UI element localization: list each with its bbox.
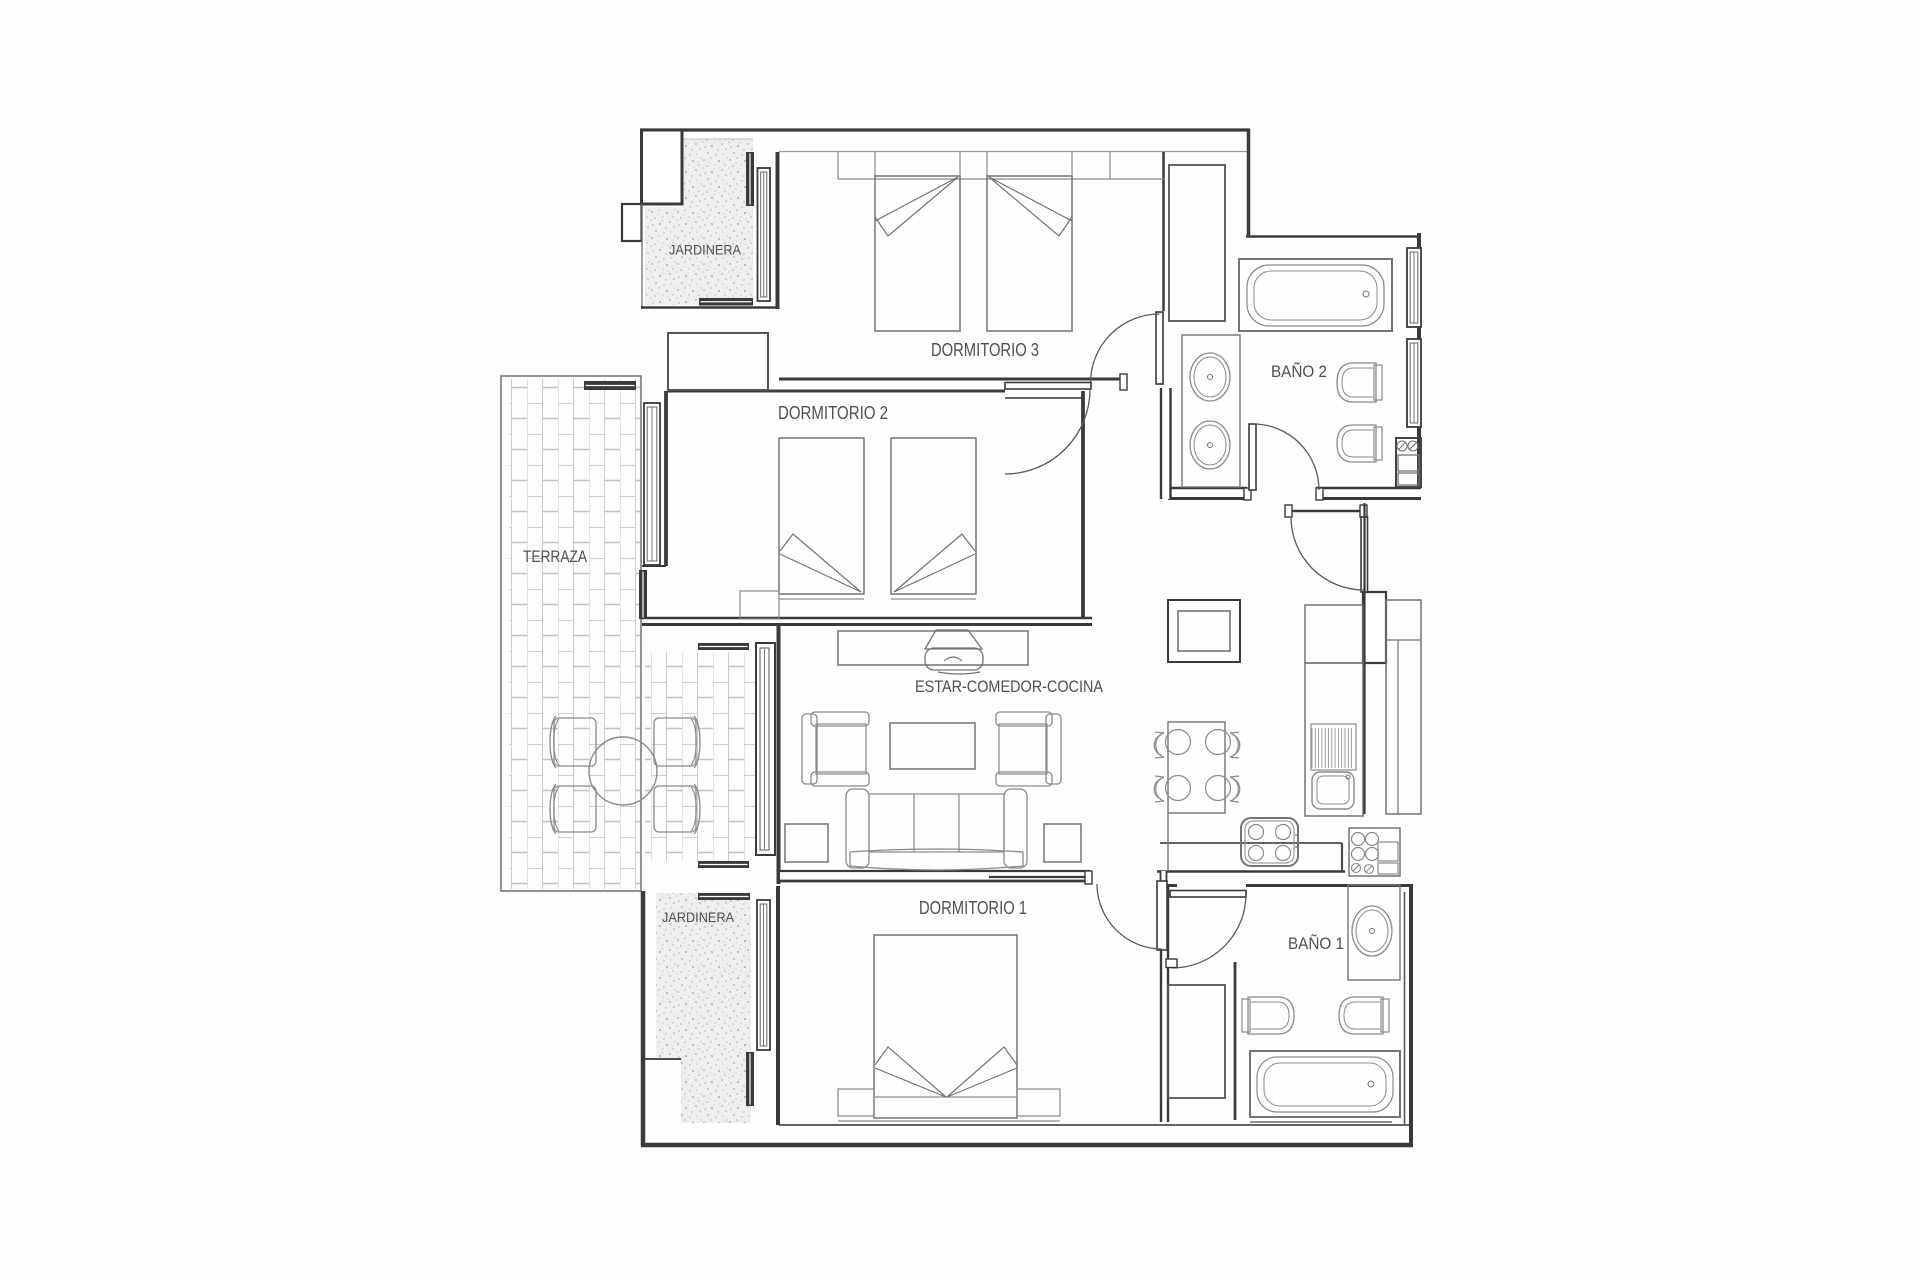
svg-text:BAÑO 2: BAÑO 2 — [1271, 362, 1327, 381]
svg-text:JARDINERA: JARDINERA — [662, 909, 735, 925]
svg-text:DORMITORIO 2: DORMITORIO 2 — [778, 403, 888, 423]
svg-text:ESTAR-COMEDOR-COCINA: ESTAR-COMEDOR-COCINA — [915, 677, 1104, 696]
svg-text:TERRAZA: TERRAZA — [523, 547, 588, 566]
svg-text:DORMITORIO 1: DORMITORIO 1 — [919, 898, 1027, 918]
svg-text:DORMITORIO 3: DORMITORIO 3 — [931, 340, 1039, 360]
svg-text:JARDINERA: JARDINERA — [669, 242, 742, 258]
svg-text:BAÑO 1: BAÑO 1 — [1288, 934, 1344, 953]
